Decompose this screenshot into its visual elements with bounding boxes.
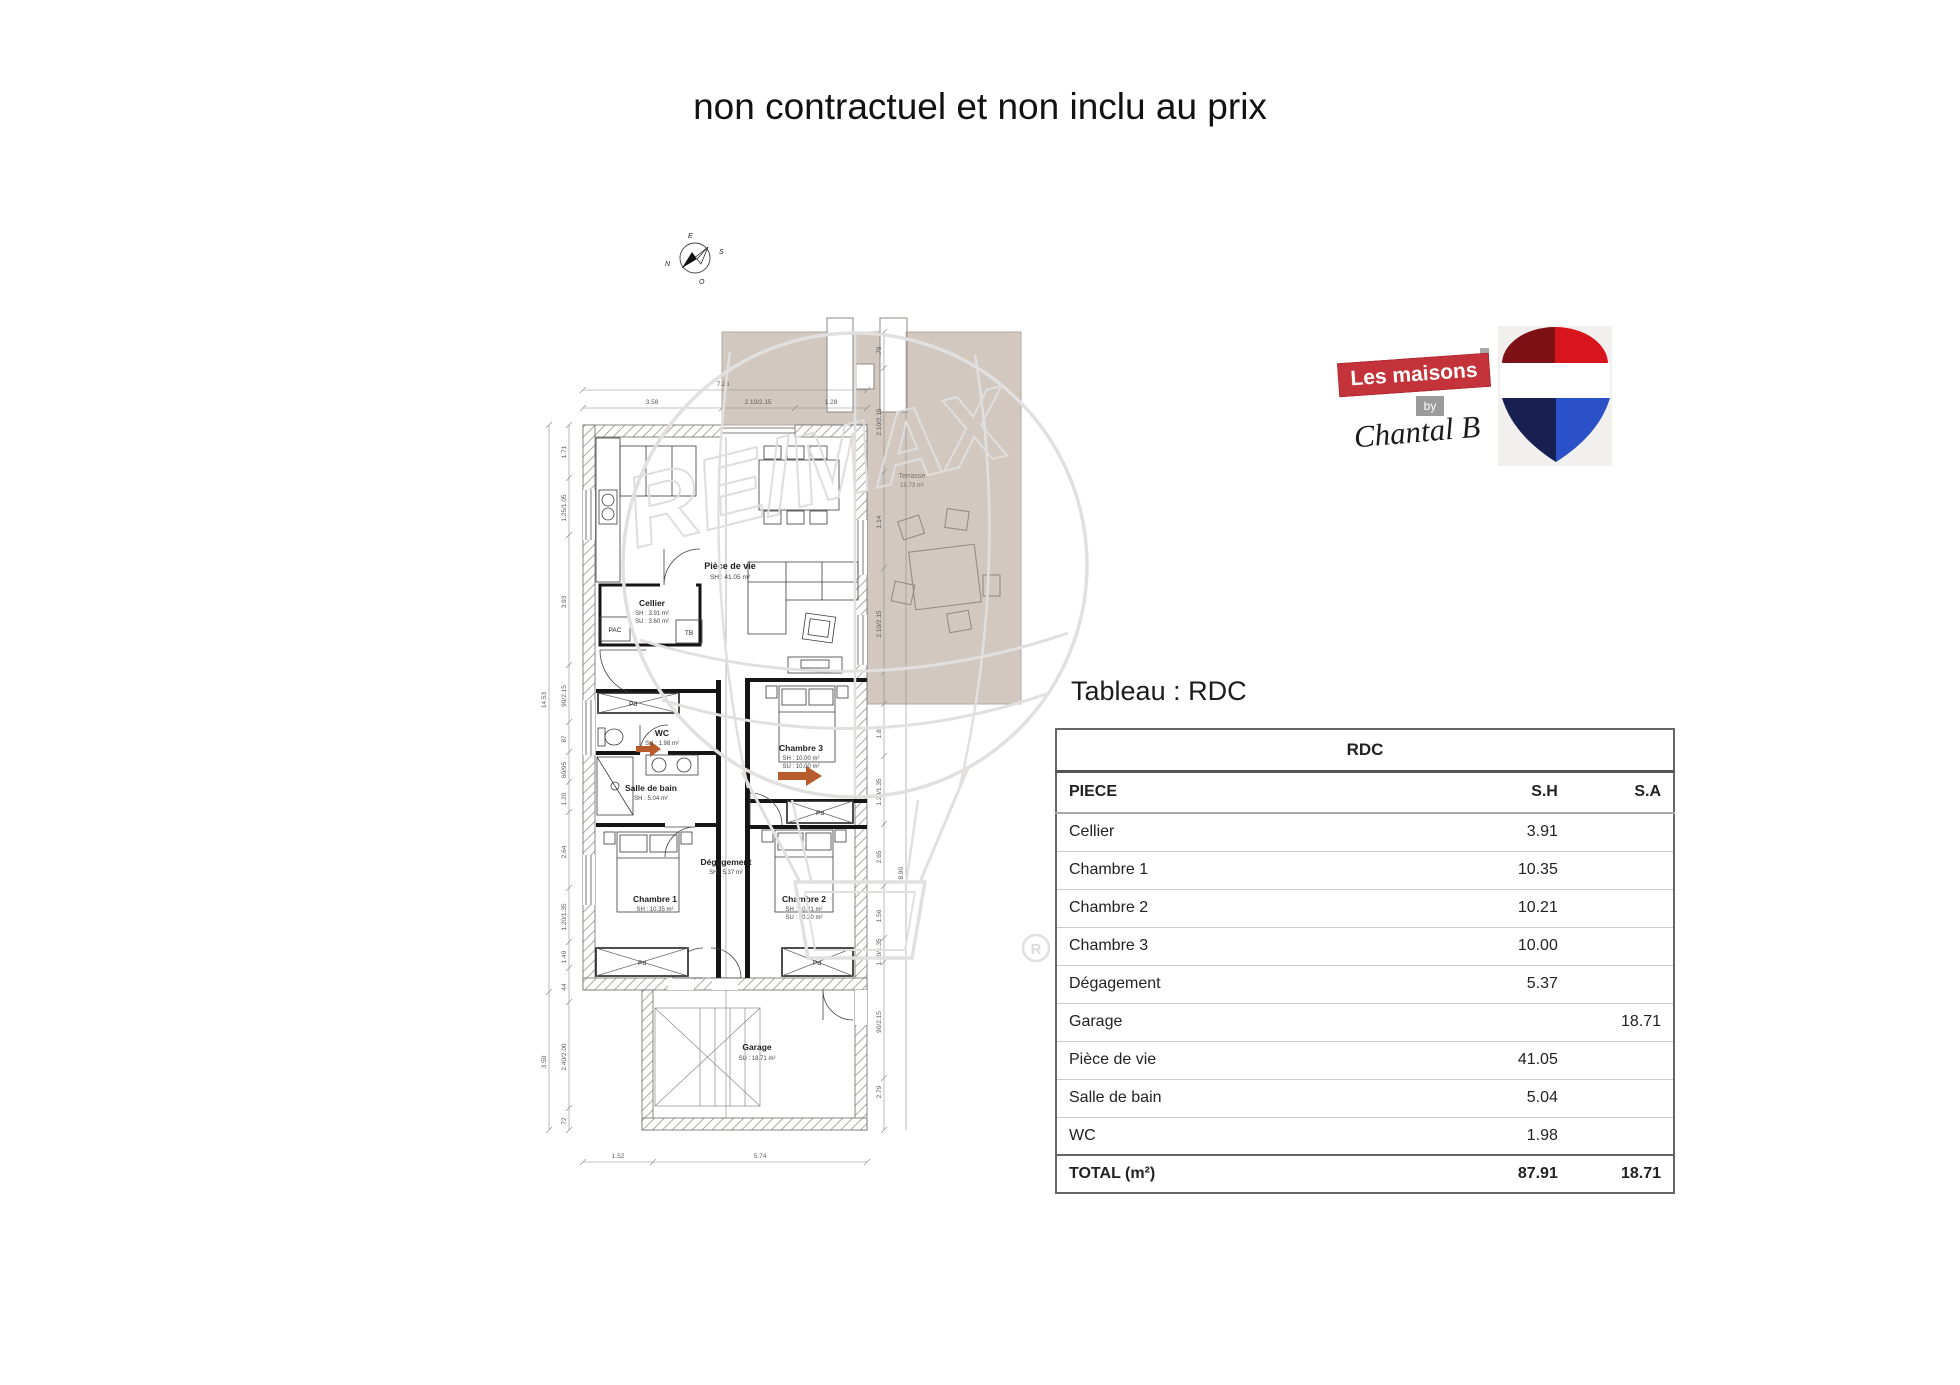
garage-marking [655, 1008, 760, 1106]
svg-text:2.10/2.15: 2.10/2.15 [744, 399, 771, 406]
svg-text:S: S [719, 249, 724, 256]
brand-logo: Les maisons by Chantal B [1330, 340, 1505, 470]
svg-text:1.71: 1.71 [561, 445, 568, 458]
floor-plan: Pièce de vie SH : 41.05 m² Cellier SH : … [540, 160, 1050, 1240]
svg-text:SH : 10.35 m²: SH : 10.35 m² [636, 907, 673, 913]
svg-text:SU : 10.00 m²: SU : 10.00 m² [782, 764, 819, 770]
svg-text:14.53: 14.53 [541, 691, 548, 708]
svg-text:Pd: Pd [813, 960, 821, 967]
svg-text:SH : 3.91 m²: SH : 3.91 m² [635, 611, 669, 617]
svg-text:1.20/1.35: 1.20/1.35 [876, 778, 883, 805]
svg-text:SH : 41.05 m²: SH : 41.05 m² [710, 574, 751, 581]
interior-walls [596, 678, 867, 978]
svg-text:2.65: 2.65 [876, 850, 883, 863]
doors [600, 549, 853, 1020]
table-row: WC 1.98 [1056, 1117, 1674, 1155]
svg-text:Pd: Pd [638, 960, 646, 967]
svg-text:1.20: 1.20 [561, 792, 568, 805]
svg-text:18.90: 18.90 [898, 866, 905, 883]
room-label-sdb: Salle de bain [625, 783, 677, 793]
pin-logo-icon [1498, 326, 1612, 466]
svg-text:1.52: 1.52 [612, 1153, 625, 1160]
watermark-text: RE/MAX [614, 365, 1024, 569]
svg-text:1.20/1.35: 1.20/1.35 [561, 903, 568, 930]
page-title: non contractuel et non inclu au prix [0, 86, 1960, 128]
table-floor-header: RDC [1056, 729, 1674, 771]
brand-signature: Chantal B [1331, 407, 1503, 458]
svg-text:SH : 5.04 m²: SH : 5.04 m² [634, 796, 668, 802]
room-label-chambre2: Chambre 2 [782, 894, 826, 904]
svg-text:2.79: 2.79 [876, 1085, 883, 1098]
svg-text:1.25/1.05: 1.25/1.05 [561, 494, 568, 521]
svg-text:3.58: 3.58 [646, 399, 659, 406]
svg-text:60/95: 60/95 [561, 761, 568, 778]
svg-text:SH : 10.21 m²: SH : 10.21 m² [785, 907, 822, 913]
svg-text:90/2.15: 90/2.15 [561, 685, 568, 707]
section-title: Tableau : RDC [1071, 676, 1247, 707]
dimension-lines [546, 329, 906, 1165]
room-label-cellier: Cellier [639, 598, 666, 608]
room-labels: Pièce de vie SH : 41.05 m² Cellier SH : … [609, 473, 926, 1062]
svg-text:1.20/1.35: 1.20/1.35 [876, 938, 883, 965]
svg-text:2.10/2.15: 2.10/2.15 [876, 408, 883, 435]
svg-text:1.82: 1.82 [876, 725, 883, 738]
brand-name: Les maisons [1337, 353, 1491, 398]
room-label-terrasse: Terrasse [899, 473, 926, 480]
svg-text:3.93: 3.93 [561, 595, 568, 608]
table-column-header: PIECE S.H S.A [1056, 771, 1674, 813]
room-label-piece-de-vie: Pièce de vie [704, 561, 756, 571]
col-piece: PIECE [1056, 771, 1380, 813]
svg-text:44: 44 [561, 983, 568, 991]
svg-text:Pd: Pd [816, 810, 824, 817]
registered-mark: R [1031, 941, 1042, 958]
svg-text:SU : 3.60 m²: SU : 3.60 m² [635, 619, 669, 625]
page: non contractuel et non inclu au prix [0, 0, 1960, 1385]
svg-text:SH : 5.37 m²: SH : 5.37 m² [709, 870, 743, 876]
table-row: Garage 18.71 [1056, 1003, 1674, 1041]
svg-text:SH : 10.00 m²: SH : 10.00 m² [782, 756, 819, 762]
svg-text:1.49: 1.49 [561, 950, 568, 963]
table-row: Cellier 3.91 [1056, 813, 1674, 851]
table-row: Dégagement 5.37 [1056, 965, 1674, 1003]
svg-text:N: N [665, 261, 671, 268]
terrace-openings [827, 318, 907, 412]
col-sh: S.H [1380, 771, 1570, 813]
svg-text:SU : 10.20 m²: SU : 10.20 m² [785, 915, 822, 921]
room-label-chambre3: Chambre 3 [779, 743, 823, 753]
tb-label: TB [685, 630, 693, 637]
svg-text:1.56: 1.56 [876, 909, 883, 922]
svg-text:87: 87 [561, 735, 568, 743]
room-label-garage: Garage [742, 1042, 772, 1052]
svg-text:1.28: 1.28 [825, 399, 838, 406]
svg-text:2.10/2.15: 2.10/2.15 [876, 610, 883, 637]
svg-text:3.50: 3.50 [541, 1055, 548, 1068]
table-row: Salle de bain 5.04 [1056, 1079, 1674, 1117]
pac-label: PAC [609, 627, 622, 634]
entry-arrow-icon [636, 741, 822, 786]
exterior-walls [583, 425, 867, 1130]
table-row: Chambre 3 10.00 [1056, 927, 1674, 965]
room-label-wc: WC [655, 728, 669, 738]
cellier-walls [600, 581, 700, 645]
svg-text:7.26: 7.26 [717, 381, 730, 388]
svg-text:O: O [699, 279, 705, 286]
table-row: Chambre 2 10.21 [1056, 889, 1674, 927]
table-total-row: TOTAL (m²) 87.91 18.71 [1056, 1155, 1674, 1193]
remax-watermark: RE/MAX R [600, 320, 1100, 1000]
col-sa: S.A [1570, 771, 1674, 813]
compass-icon: E S O N [665, 233, 724, 286]
window-openings [583, 428, 867, 1025]
svg-text:SU : 18.71 m²: SU : 18.71 m² [738, 1056, 775, 1062]
closets [596, 693, 853, 976]
svg-text:18.73 m²: 18.73 m² [900, 483, 924, 489]
svg-text:1.14: 1.14 [876, 515, 883, 528]
svg-text:.79: .79 [876, 346, 883, 355]
room-label-degagement: Dégagement [700, 857, 751, 867]
svg-text:90/2.15: 90/2.15 [876, 1011, 883, 1033]
svg-text:SH : 1.98 m²: SH : 1.98 m² [645, 741, 679, 747]
terrace-area [722, 332, 1021, 704]
furniture [596, 438, 858, 912]
terrace-furniture [891, 509, 1000, 633]
svg-text:72: 72 [561, 1117, 568, 1125]
area-table: RDC PIECE S.H S.A Cellier 3.91 Chambre 1… [1055, 728, 1675, 1194]
table-row: Chambre 1 10.35 [1056, 851, 1674, 889]
svg-text:2.40/2.00: 2.40/2.00 [561, 1043, 568, 1070]
table-row: Pièce de vie 41.05 [1056, 1041, 1674, 1079]
svg-text:2.64: 2.64 [561, 845, 568, 858]
room-label-chambre1: Chambre 1 [633, 894, 677, 904]
svg-text:E: E [688, 233, 693, 240]
dimension-labels: 7.26 3.58 2.10/2.15 1.28 14.53 3.50 1.71… [541, 346, 905, 1160]
svg-text:5.74: 5.74 [754, 1153, 767, 1160]
pd-label: Pd [629, 701, 637, 708]
